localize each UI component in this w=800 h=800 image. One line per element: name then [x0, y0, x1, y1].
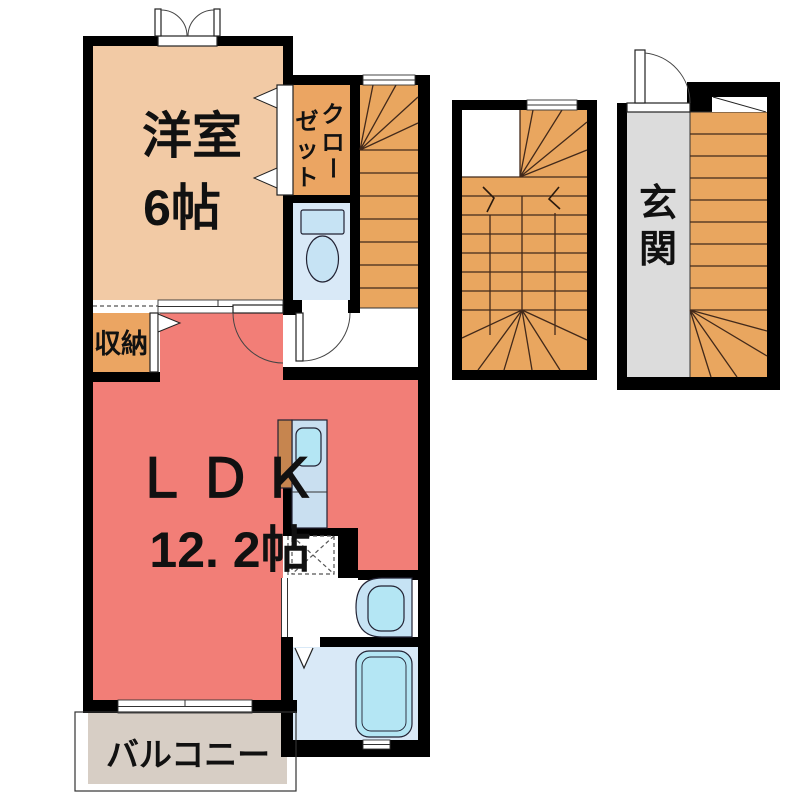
ldk-door: [233, 305, 283, 313]
door-swing-arc: [161, 10, 187, 36]
closet-label-char: ー: [320, 157, 346, 180]
entrance-label-char: 関: [639, 229, 677, 271]
closet-label-char: ト: [296, 164, 319, 190]
closet-label-char: ク: [322, 101, 345, 127]
entry-door-sill: [627, 103, 690, 112]
western-room-door-sill: [158, 36, 217, 46]
balcony-label: バルコニー: [106, 736, 270, 773]
bathroom-doorway: [293, 637, 320, 647]
bathtub: [356, 651, 412, 737]
stair-landing: [462, 110, 520, 177]
balcony-window: [118, 700, 252, 713]
stair-break-symbol: [712, 97, 767, 112]
entrance-label-char: 玄: [639, 183, 677, 225]
closet-door: [277, 85, 293, 195]
double-door-leaf: [214, 9, 220, 36]
ldk-label: ＬＤＫ: [134, 449, 326, 509]
door-swing-arc: [188, 10, 214, 36]
vanity-sink: [356, 578, 412, 637]
door-swing-arc: [303, 313, 350, 361]
stair-window: [363, 75, 415, 85]
door-swing-arc: [645, 53, 690, 103]
western-room-label: 洋室: [142, 108, 242, 164]
toilet-doorway: [302, 300, 348, 313]
bathroom-window: [363, 740, 390, 749]
stair-section-window: [527, 100, 577, 110]
ldk-area: 12. 2帖: [149, 522, 310, 578]
floor-plan: 洋室 6帖 ク ロ ー ゼ ッ ト 収納 ＬＤＫ 12. 2帖 バルコニー 玄 …: [0, 0, 800, 800]
toilet-door: [296, 313, 303, 361]
storage-label: 収納: [94, 328, 148, 359]
storage-door: [150, 313, 158, 372]
western-room-floor: [93, 46, 283, 300]
closet-label-char: ゼ: [296, 108, 319, 134]
western-room-area: 6帖: [143, 180, 221, 236]
closet-label-char: ロ: [322, 129, 345, 155]
entry-door: [635, 50, 645, 103]
floor-plan-drawing: 洋室 6帖 ク ロ ー ゼ ッ ト 収納 ＬＤＫ 12. 2帖 バルコニー 玄 …: [0, 0, 800, 800]
double-door-leaf: [155, 9, 161, 36]
closet-label-char: ッ: [296, 136, 319, 162]
